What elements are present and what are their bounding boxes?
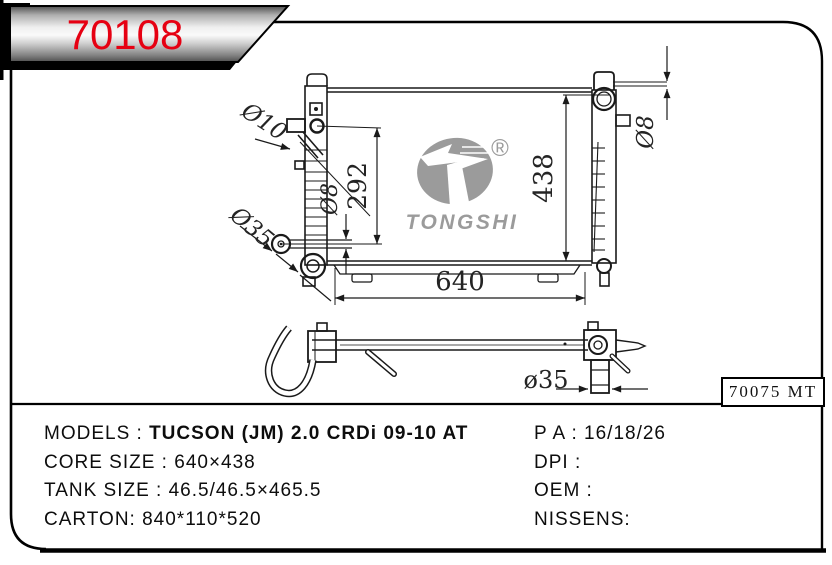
outlet-port bbox=[301, 254, 325, 278]
dim-inlet-outlet-distance: 292 bbox=[343, 162, 372, 210]
spec-tank-size-value: 46.5/46.5×465.5 bbox=[169, 480, 322, 502]
spec-pa-value: 16/18/26 bbox=[584, 423, 666, 445]
spec-carton-value: 840*110*520 bbox=[142, 509, 261, 531]
right-tank bbox=[592, 90, 616, 263]
registered-mark-icon: ® bbox=[491, 135, 509, 162]
side-left-tank bbox=[308, 331, 336, 362]
left-nipple bbox=[295, 161, 304, 169]
spec-carton-label: CARTON: bbox=[44, 509, 142, 531]
side-pipe-port bbox=[589, 336, 607, 354]
part-number-banner: 70108 bbox=[0, 0, 288, 80]
spec-list-right: P A : 16/18/26 DPI : OEM : NISSENS: bbox=[534, 420, 666, 534]
logo-brand-text: TONGSHI bbox=[406, 211, 519, 234]
catalog-page: 70108 bbox=[0, 0, 832, 565]
side-right-stub bbox=[616, 340, 645, 352]
spec-core-size: CORE SIZE : 640×438 bbox=[44, 449, 468, 478]
right-pipe bbox=[616, 115, 630, 126]
dim-core-width: 640 bbox=[435, 267, 485, 297]
side-lower-pipe bbox=[591, 360, 609, 393]
right-tank-ribs bbox=[592, 148, 605, 250]
spec-dpi-label: DPI : bbox=[534, 452, 588, 474]
dim-outlet-pipe-diameter: Ø8 bbox=[318, 183, 343, 216]
reference-code-box: 70075 MT bbox=[721, 377, 825, 407]
spec-models-value: TUCSON (JM) 2.0 CRDi 09-10 AT bbox=[149, 423, 468, 445]
dim-side-pipe-diameter: ø35 bbox=[524, 366, 569, 394]
side-right-nipple bbox=[588, 322, 598, 330]
spec-carton: CARTON: 840*110*520 bbox=[44, 506, 468, 535]
part-number: 70108 bbox=[67, 11, 184, 58]
spec-oem-label: OEM : bbox=[534, 480, 599, 502]
filler-cap bbox=[593, 88, 615, 110]
spec-pa-label: P A : bbox=[534, 423, 584, 445]
left-tank bbox=[305, 86, 327, 265]
spec-dpi: DPI : bbox=[534, 449, 666, 478]
dim-inlet-diameter: Ø10 bbox=[236, 98, 291, 147]
spec-core-size-value: 640×438 bbox=[174, 452, 256, 474]
spec-core-size-label: CORE SIZE : bbox=[44, 452, 174, 474]
spec-list-left: MODELS : TUCSON (JM) 2.0 CRDi 09-10 AT C… bbox=[44, 420, 468, 534]
spec-models-label: MODELS : bbox=[44, 423, 149, 445]
spec-tank-size: TANK SIZE : 46.5/46.5×465.5 bbox=[44, 477, 468, 506]
left-tank-bracket bbox=[307, 74, 327, 86]
dim-core-height: 438 bbox=[529, 153, 559, 203]
spec-nissens: NISSENS: bbox=[534, 506, 666, 535]
drain-plug bbox=[600, 273, 609, 286]
side-left-nipple bbox=[317, 323, 327, 331]
spec-pa: P A : 16/18/26 bbox=[534, 420, 666, 449]
radiator-side-view bbox=[269, 322, 645, 393]
spec-models: MODELS : TUCSON (JM) 2.0 CRDi 09-10 AT bbox=[44, 420, 468, 449]
dim-overflow-pipe-diameter: Ø8 bbox=[633, 115, 659, 150]
drain-port bbox=[597, 259, 611, 273]
spec-tank-size-label: TANK SIZE : bbox=[44, 480, 169, 502]
spec-nissens-label: NISSENS: bbox=[534, 509, 637, 531]
reference-code: 70075 MT bbox=[729, 382, 817, 402]
dim-outlet-diameter: Ø35 bbox=[224, 202, 278, 253]
spec-oem: OEM : bbox=[534, 477, 666, 506]
inlet-strut bbox=[298, 132, 323, 158]
brand-logo: ® TONGSHI bbox=[406, 133, 519, 234]
